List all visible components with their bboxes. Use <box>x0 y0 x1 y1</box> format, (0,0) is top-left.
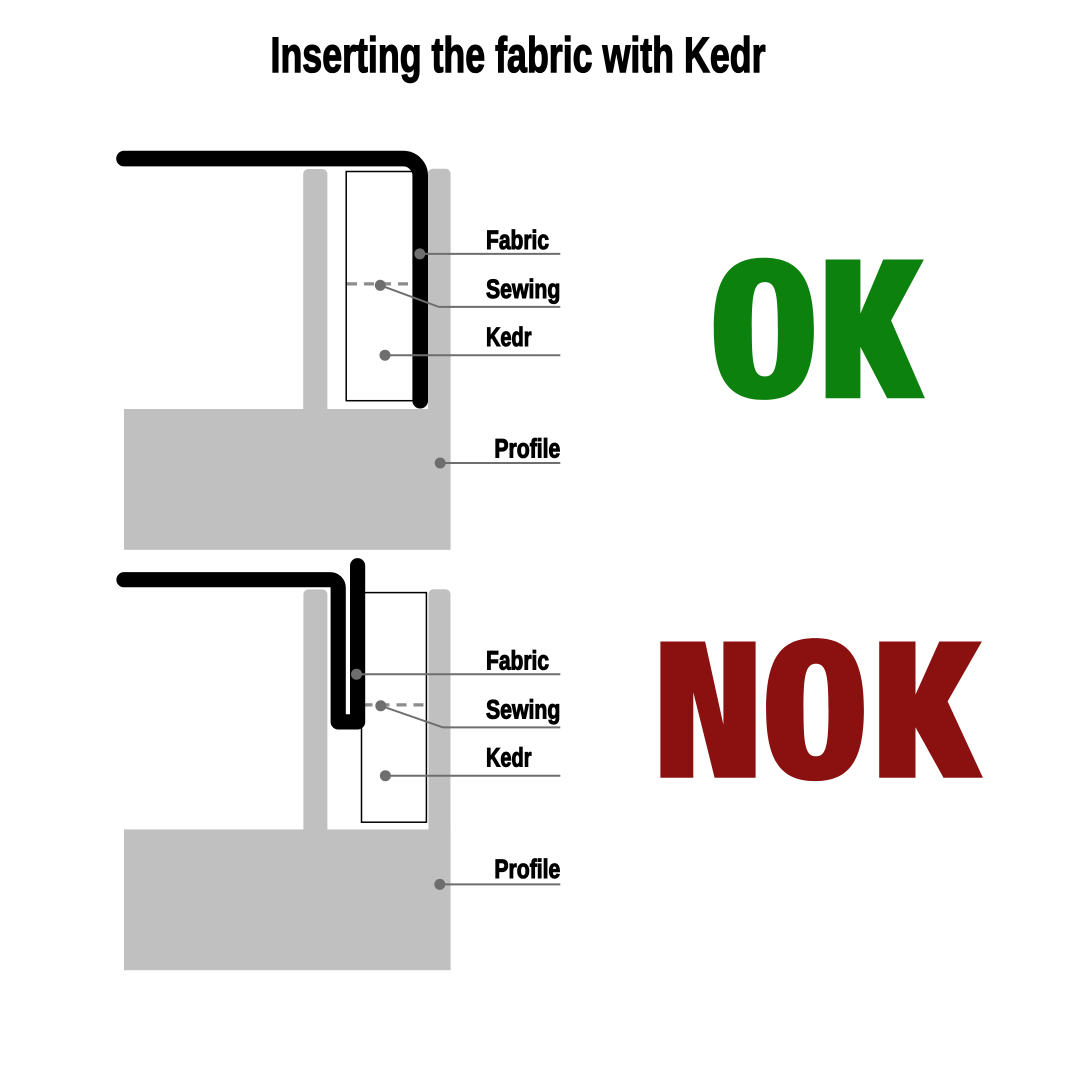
svg-text:Sewing: Sewing <box>486 274 560 304</box>
svg-text:Fabric: Fabric <box>486 225 549 255</box>
svg-text:Profile: Profile <box>494 854 560 884</box>
svg-text:Profile: Profile <box>494 434 560 464</box>
svg-text:Kedr: Kedr <box>486 742 532 772</box>
svg-text:Inserting the fabric with Kedr: Inserting the fabric with Kedr <box>271 27 766 83</box>
svg-text:Kedr: Kedr <box>486 322 532 352</box>
svg-text:Fabric: Fabric <box>486 645 549 675</box>
svg-text:Sewing: Sewing <box>486 694 560 724</box>
